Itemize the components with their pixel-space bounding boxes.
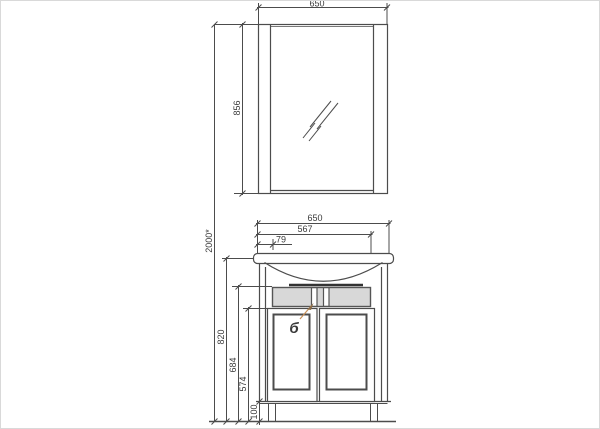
dim-label-door-height: 574 [238,376,248,391]
dim-label-drawer-top-height: 684 [228,357,238,372]
mirror-frame [259,25,388,194]
dim-label-worktop-height: 820 [216,329,226,344]
dim-mirror-height: 856 [214,22,258,197]
basin-front-curve [265,263,383,282]
drawer-band [273,285,371,307]
technical-drawing-vanity-with-mirror: 650 856 2000* 650 567 79 [0,0,600,429]
dim-label-cabinet-width: 650 [307,213,322,223]
callout-b-label: б [289,320,299,337]
dim-worktop-height: 820 [216,256,253,425]
dim-label-plinth-height: 100 [249,404,259,419]
dim-label-basin-width: 567 [297,224,312,234]
dim-basin-width: 567 [255,224,375,253]
doors [268,309,375,402]
dim-label-overall-height: 2000* [204,229,214,253]
dim-label-mirror-height: 856 [232,100,242,115]
vanity-countertop [254,254,394,264]
mirror-elevation [259,25,388,194]
dim-mirror-width: 650 [256,1,391,24]
dim-basin-offset: 79 [255,235,293,251]
dim-overall-height: 2000* [204,22,218,425]
dim-label-basin-offset: 79 [276,235,286,245]
dim-label-mirror-width: 650 [309,1,324,9]
plinth [269,404,378,422]
